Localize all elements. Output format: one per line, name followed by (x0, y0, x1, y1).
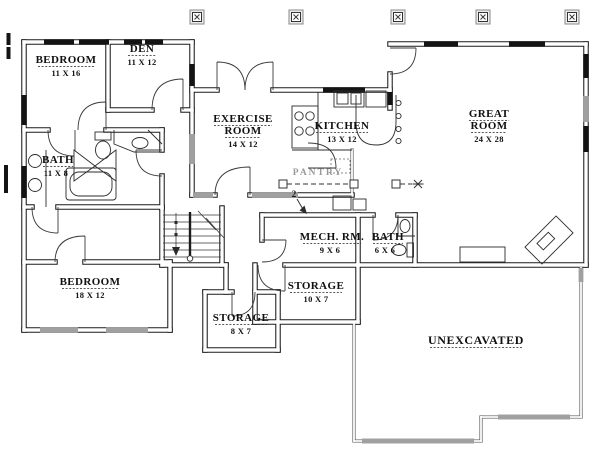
door-bedroom1 (78, 102, 106, 130)
arrow-dot (175, 221, 178, 224)
stair-treads (163, 215, 221, 257)
room-label-bedroom2: BEDROOM 18 X 12 (60, 276, 121, 300)
floor-plan: 2 BEDROOM 11 X 16 DEN 11 X 12 EXERCISE R… (0, 0, 600, 458)
room-label-bedroom1: BEDROOM 11 X 16 (36, 54, 97, 78)
window (189, 64, 195, 86)
post-marker-icon (476, 10, 490, 24)
door-great-room (390, 48, 416, 74)
window (509, 41, 545, 47)
svg-text:BEDROOM: BEDROOM (36, 54, 97, 66)
bar-support (396, 113, 401, 118)
hatch-segment (362, 439, 474, 444)
post-star-symbol (413, 180, 424, 188)
post-marker-icon (391, 10, 405, 24)
hatch-segment (106, 327, 148, 333)
window (424, 41, 458, 47)
door-bath-main-right (136, 150, 162, 176)
great-room-features (460, 216, 573, 264)
svg-text:DEN: DEN (130, 43, 154, 55)
angled-door-left (74, 150, 95, 181)
door-mech-room (262, 240, 286, 262)
hatch-segment (579, 268, 584, 282)
bar-support (396, 100, 401, 105)
svg-text:9 X 6: 9 X 6 (320, 245, 340, 255)
room-label-exercise: EXERCISE ROOM 14 X 12 (213, 113, 272, 149)
kitchen-fixtures (292, 91, 401, 173)
toilet-tank-icon (95, 132, 111, 140)
bar-support (396, 138, 401, 143)
burner-icon (306, 112, 314, 120)
burner-icon (295, 127, 303, 135)
window (44, 39, 74, 45)
window (21, 166, 27, 198)
svg-text:18 X 12: 18 X 12 (75, 290, 105, 300)
svg-text:11 X 16: 11 X 16 (51, 68, 80, 78)
hatch-segment (193, 192, 213, 198)
svg-text:UNEXCAVATED: UNEXCAVATED (428, 333, 524, 347)
svg-text:ROOM: ROOM (224, 125, 261, 137)
window (21, 95, 27, 125)
svg-text:EXERCISE: EXERCISE (213, 113, 272, 125)
window (4, 165, 8, 193)
svg-text:10 X 7: 10 X 7 (304, 294, 329, 304)
window (7, 47, 11, 59)
deck-post-markers (190, 10, 579, 24)
post-marker-icon (190, 10, 204, 24)
door-pantry (308, 143, 336, 168)
beam-symbols (279, 180, 424, 188)
angled-door-right (95, 150, 116, 181)
floor-plan-drawing: 2 BEDROOM 11 X 16 DEN 11 X 12 EXERCISE R… (0, 0, 600, 458)
window (583, 126, 589, 152)
double-door-exercise-left (217, 62, 245, 90)
svg-text:8 X 7: 8 X 7 (231, 326, 252, 336)
svg-text:13 X 12: 13 X 12 (327, 134, 357, 144)
svg-text:24 X 28: 24 X 28 (474, 134, 504, 144)
burner-icon (295, 112, 303, 120)
svg-text:GREAT: GREAT (469, 108, 510, 120)
svg-text:2: 2 (292, 189, 297, 199)
arrow-dot (175, 233, 178, 236)
window (583, 54, 589, 78)
room-label-great-room: GREAT ROOM 24 X 28 (469, 108, 510, 144)
door-exercise-hall (215, 167, 250, 195)
room-label-pantry: PANTRY (293, 168, 344, 178)
room-label-unexcavated: UNEXCAVATED (428, 333, 524, 348)
refrigerator-icon (366, 91, 386, 107)
svg-text:MECH. RM.: MECH. RM. (300, 231, 364, 243)
double-door-exercise-right (245, 62, 273, 90)
post-marker-icon (289, 10, 303, 24)
post-symbol (279, 180, 287, 188)
sink-icon (132, 138, 148, 149)
stairs (163, 211, 224, 261)
svg-text:BATH: BATH (372, 231, 404, 243)
svg-text:ROOM: ROOM (470, 120, 507, 132)
sink-icon (29, 155, 42, 168)
sink-icon (29, 179, 42, 192)
room-label-bath-small: BATH 6 X 6 (372, 231, 404, 255)
window (79, 39, 109, 45)
toilet-icon (96, 141, 111, 159)
window (323, 87, 365, 93)
water-heater-icon (353, 199, 366, 210)
burner-icon (306, 127, 314, 135)
hearth (460, 247, 505, 262)
svg-text:PANTRY: PANTRY (293, 168, 344, 178)
bar-support (396, 126, 401, 131)
post-symbol (392, 180, 400, 188)
post-symbol (350, 180, 358, 188)
direction-arrow-head (172, 247, 180, 256)
hatch-segment (498, 415, 570, 420)
svg-text:KITCHEN: KITCHEN (315, 120, 370, 132)
room-label-storage-large: STORAGE 10 X 7 (288, 280, 344, 304)
room-label-mech: MECH. RM. 9 X 6 (300, 231, 364, 255)
hatch-segment (40, 327, 78, 333)
hatch-segment (583, 96, 589, 122)
window (7, 33, 11, 45)
fireplace-icon (525, 216, 573, 264)
room-label-den: DEN 11 X 12 (127, 43, 156, 67)
door-hall (32, 207, 58, 233)
room-label-kitchen: KITCHEN 13 X 12 (315, 120, 370, 144)
furnace-icon (333, 196, 351, 210)
svg-text:STORAGE: STORAGE (213, 312, 269, 324)
sink-bowl (337, 93, 348, 104)
window (387, 92, 393, 105)
mech-equipment (333, 196, 366, 210)
door-bedroom2 (55, 236, 85, 262)
svg-text:STORAGE: STORAGE (288, 280, 344, 292)
room-label-bath-main: BATH 11 X 8 (42, 154, 74, 178)
door-den (152, 79, 183, 110)
svg-text:11 X 8: 11 X 8 (44, 168, 68, 178)
hatch-segment (189, 134, 195, 164)
door-bath-main-left (48, 130, 75, 156)
newel-post (187, 256, 193, 262)
post-marker-icon (565, 10, 579, 24)
svg-text:11 X 12: 11 X 12 (127, 57, 156, 67)
svg-text:BATH: BATH (42, 154, 74, 166)
svg-text:14 X 12: 14 X 12 (228, 139, 258, 149)
svg-text:6 X 6: 6 X 6 (375, 245, 395, 255)
svg-text:BEDROOM: BEDROOM (60, 276, 121, 288)
door-storage-large (258, 265, 285, 291)
